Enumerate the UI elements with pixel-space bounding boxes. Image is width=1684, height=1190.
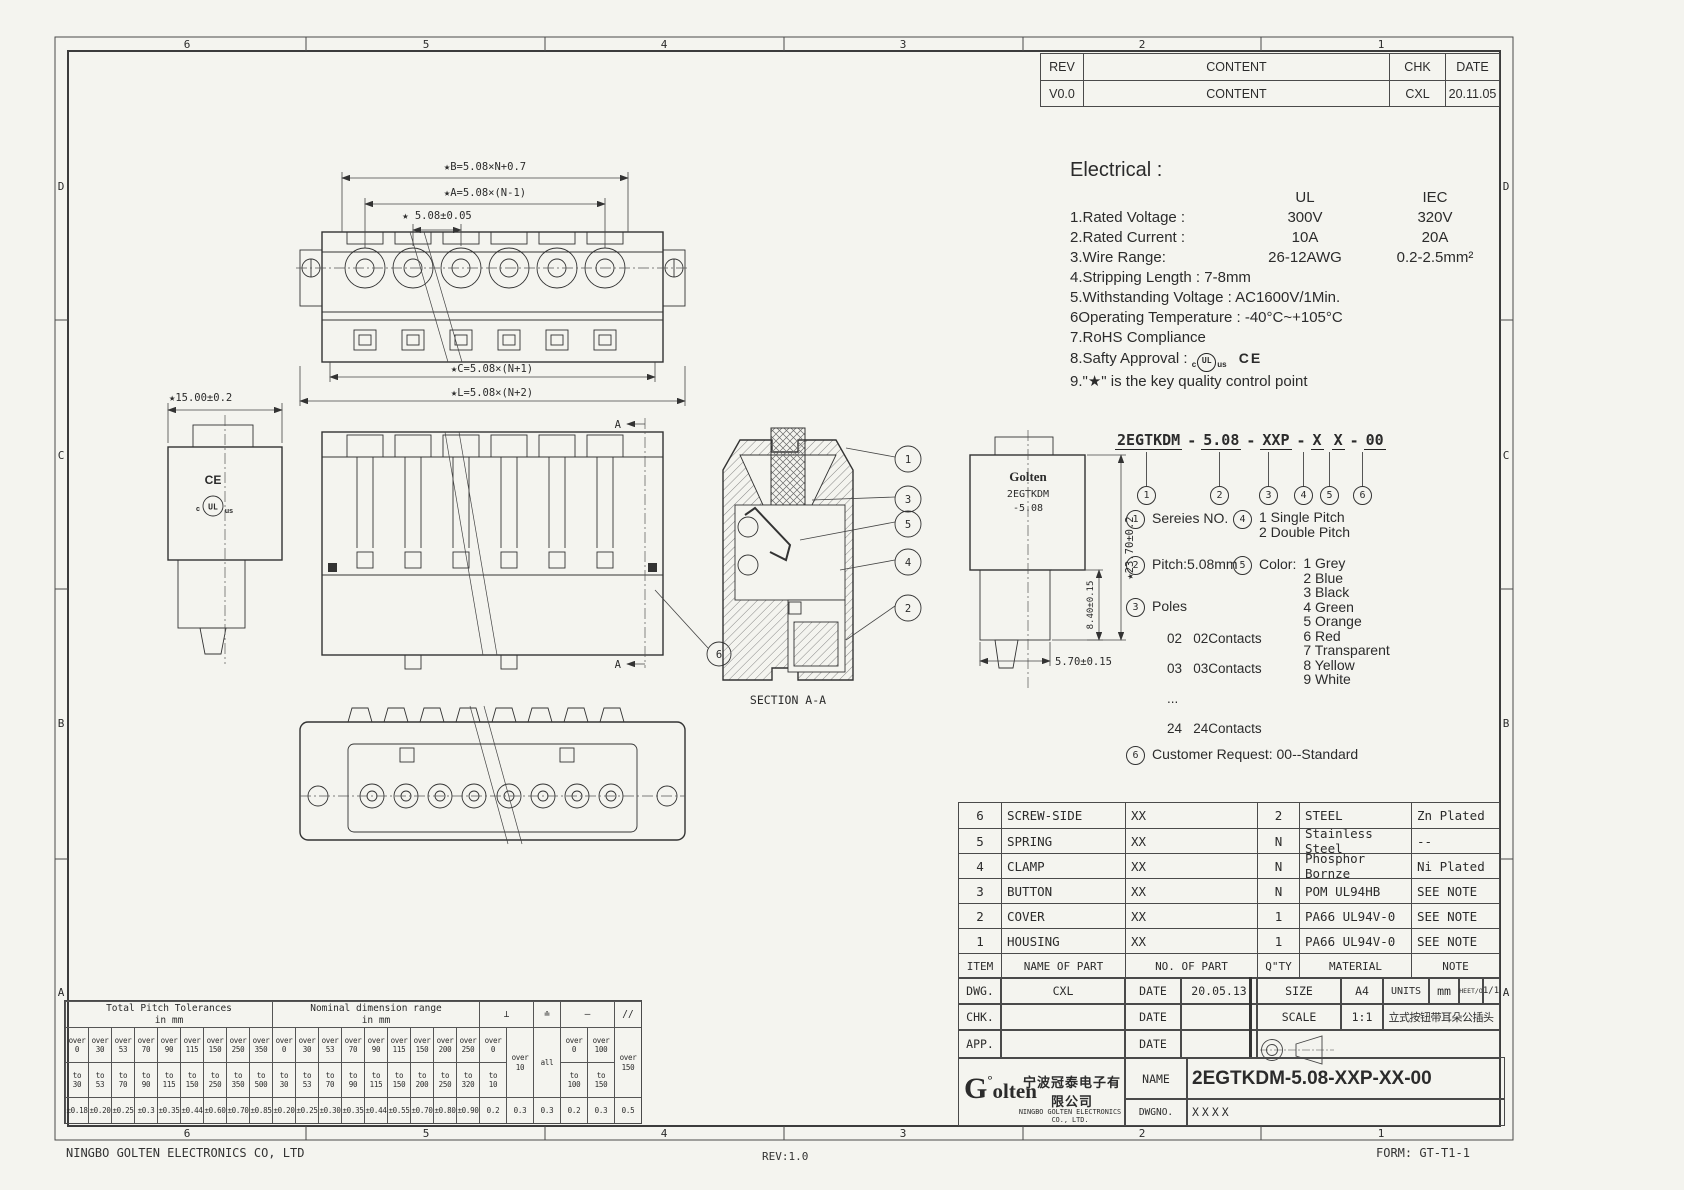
- tol-to: to 320: [456, 1062, 479, 1097]
- bom-qty: 1: [1257, 928, 1299, 953]
- svg-text:★23.70±0.2: ★23.70±0.2: [1124, 516, 1136, 579]
- spec-iec: 20A: [1370, 228, 1500, 248]
- section-view: SECTION A-A 1 3 5 4 2: [723, 428, 921, 707]
- svg-text:A: A: [1503, 986, 1510, 999]
- bom-note: SEE NOTE: [1411, 928, 1499, 953]
- bom-item: 3: [959, 878, 1001, 903]
- size-label: SIZE: [1256, 977, 1342, 1005]
- date-value: [1180, 1029, 1258, 1059]
- tol-to: to 10: [479, 1062, 506, 1097]
- svg-text:UL: UL: [208, 503, 218, 512]
- svg-text:1: 1: [1378, 1127, 1385, 1140]
- tol-value: 0.2: [560, 1097, 587, 1123]
- svg-text:4: 4: [661, 38, 668, 51]
- tol-to: to 200: [410, 1062, 433, 1097]
- svg-text:6: 6: [184, 38, 191, 51]
- dwgno-value: XXXX: [1186, 1098, 1505, 1126]
- dwgno-label: DWGNO.: [1124, 1098, 1188, 1126]
- code-poles: XXP: [1260, 431, 1291, 450]
- name-label: NAME: [1124, 1057, 1188, 1100]
- bom-part-name: HOUSING: [1001, 928, 1125, 953]
- bom-note: SEE NOTE: [1411, 878, 1499, 903]
- tol-to: to 90: [134, 1062, 157, 1097]
- legend-pitch-label: Pitch:5.08mm: [1152, 556, 1238, 572]
- bom-part-no: XX: [1125, 828, 1257, 853]
- app-value: [1000, 1029, 1126, 1059]
- callout-balloon: 2: [1210, 486, 1229, 505]
- bom-header: NAME OF PART: [1001, 953, 1125, 978]
- tol-over: over 53: [318, 1027, 341, 1062]
- legend-color-label: Color:: [1259, 556, 1296, 572]
- scale-value: 1:1: [1340, 1003, 1384, 1031]
- svg-text:3: 3: [900, 38, 907, 51]
- bom-part-name: COVER: [1001, 903, 1125, 928]
- tol-over: over 150: [410, 1027, 433, 1062]
- svg-text:C: C: [1503, 449, 1510, 462]
- date-label: DATE: [1124, 977, 1182, 1005]
- button-hole: [738, 555, 758, 575]
- tol-value: ±0.30: [318, 1097, 341, 1123]
- bom-material: POM UL94HB: [1299, 878, 1411, 903]
- tol-value: 0.3: [533, 1097, 560, 1123]
- dwg-label: DWG.: [958, 977, 1002, 1005]
- bom-item: 5: [959, 828, 1001, 853]
- tol-over: over 90: [364, 1027, 387, 1062]
- svg-text:★C=5.08×(N+1): ★C=5.08×(N+1): [451, 363, 533, 375]
- bom-material: Stainless Steel: [1299, 828, 1411, 853]
- code-pitch: 5.08: [1201, 431, 1241, 450]
- date-value: [1180, 1003, 1258, 1031]
- tol-to: to 70: [318, 1062, 341, 1097]
- tol-value: ±0.90: [456, 1097, 479, 1123]
- svg-text:4: 4: [905, 557, 911, 569]
- tol-over: over 250: [226, 1027, 249, 1062]
- side-view-right: Golten 2EGTKDM -5.08 ★23.70±0.2 8.40±0.1…: [970, 430, 1136, 690]
- legend-series-label: Sereies NO.: [1152, 510, 1228, 526]
- tol-value: ±0.25: [111, 1097, 134, 1123]
- dim-a: ★A=5.08×(N-1): [365, 187, 605, 248]
- svg-text:6: 6: [716, 649, 722, 661]
- callout-6: 6: [655, 590, 731, 666]
- tolerance-table: Total Pitch Tolerances in mm Nominal dim…: [64, 1000, 642, 1124]
- button-hole: [738, 517, 758, 537]
- callout-balloon: 3: [1259, 486, 1278, 505]
- tol-to: to 150: [587, 1062, 614, 1097]
- tol-to: to 100: [560, 1062, 587, 1097]
- bom-qty: 2: [1257, 803, 1299, 828]
- tol-to: to 30: [65, 1062, 88, 1097]
- straightness-icon: —: [560, 1001, 614, 1027]
- company-name-cn: 宁波冠泰电子有限公司: [1022, 1072, 1122, 1110]
- pin-section: [794, 622, 838, 666]
- footer-rev: REV:1.0: [762, 1150, 808, 1163]
- legend-pitch-type: 4 1 Single Pitch 2 Double Pitch: [1233, 510, 1350, 540]
- part-number-code: 2EGTKDM - 5.08 - XXP - X X - 00: [1115, 431, 1386, 450]
- contact-slots: [347, 435, 623, 568]
- code-dash: -: [1350, 432, 1359, 450]
- date-value: 20.05.13: [1180, 977, 1258, 1005]
- bom-part-name: SCREW-SIDE: [1001, 803, 1125, 828]
- legend-poles-label: Poles: [1152, 598, 1187, 614]
- product-name-cn: 立式按钮带耳朵公插头: [1382, 1003, 1500, 1031]
- svg-text:c: c: [196, 506, 200, 513]
- callout-balloon: 5: [1320, 486, 1339, 505]
- tol-value: ±0.85: [249, 1097, 272, 1123]
- svg-text:6: 6: [184, 1127, 191, 1140]
- leader-line: [1268, 452, 1269, 486]
- tol-value: ±0.80: [433, 1097, 456, 1123]
- svg-text:1: 1: [905, 454, 911, 466]
- bom-qty: N: [1257, 853, 1299, 878]
- bom-item: 1: [959, 928, 1001, 953]
- spring-tabs: [348, 708, 624, 722]
- sheet-label: SHEET/OF: [1458, 977, 1484, 1005]
- code-color: X: [1332, 431, 1345, 450]
- dim-pitch: ★ 5.08±0.05: [402, 210, 472, 246]
- chk-label: CHK.: [958, 1003, 1002, 1031]
- spec-ul: 10A: [1250, 228, 1360, 248]
- tol-over: over 0: [479, 1027, 506, 1062]
- tol-value: ±0.18: [65, 1097, 88, 1123]
- tol-over: over 100: [587, 1027, 614, 1062]
- svg-text:★L=5.08×(N+2): ★L=5.08×(N+2): [451, 387, 533, 399]
- bom-material: STEEL: [1299, 803, 1411, 828]
- bom-part-name: BUTTON: [1001, 878, 1125, 903]
- poles-option: 02 02Contacts: [1167, 631, 1262, 646]
- bom-qty: 1: [1257, 903, 1299, 928]
- svg-text:2: 2: [1139, 1127, 1146, 1140]
- bom-note: Ni Plated: [1411, 853, 1499, 878]
- bom-header: NOTE: [1411, 953, 1499, 978]
- tol-to: to 30: [272, 1062, 295, 1097]
- tol-value: ±0.20: [272, 1097, 295, 1123]
- tol-to: to 150: [180, 1062, 203, 1097]
- leader-line: [1329, 452, 1330, 486]
- spec-iec: 320V: [1370, 208, 1500, 228]
- units-value: mm: [1428, 977, 1460, 1005]
- bottom-view: [300, 706, 685, 844]
- svg-text:2: 2: [1139, 38, 1146, 51]
- iec-col-header: IEC: [1370, 188, 1500, 208]
- code-dash: -: [1246, 432, 1255, 450]
- rev-cell: 20.11.05: [1445, 80, 1499, 106]
- tol-value: ±0.25: [295, 1097, 318, 1123]
- svg-text:8.40±0.15: 8.40±0.15: [1086, 581, 1096, 630]
- tol-to: to 150: [387, 1062, 410, 1097]
- divider-line: [1249, 977, 1252, 1057]
- tol-value: ±0.70: [410, 1097, 433, 1123]
- wire-entry-holes: [345, 232, 625, 288]
- tol-to: to 53: [88, 1062, 111, 1097]
- tol-value: 0.5: [614, 1097, 641, 1123]
- color-option: 9 White: [1303, 671, 1350, 687]
- company-name-en: NINGBO GOLTEN ELECTRONICS CO., LTD.: [1016, 1108, 1124, 1124]
- balloon-4: 4: [1233, 510, 1252, 529]
- units-label: UNITS: [1382, 977, 1430, 1005]
- dim-plug-depth: 5.70±0.15: [980, 642, 1112, 668]
- poles-option: 24 24Contacts: [1167, 721, 1262, 736]
- bom-note: --: [1411, 828, 1499, 853]
- code-pitch-type: X: [1311, 431, 1324, 450]
- tol-over: over 350: [249, 1027, 272, 1062]
- svg-text:1: 1: [1378, 38, 1385, 51]
- bom-item: 6: [959, 803, 1001, 828]
- drawing-sheet: 65 43 21 65 43 21 DC BA DC BA REV CONTEN…: [0, 0, 1684, 1190]
- bom-part-no: XX: [1125, 853, 1257, 878]
- dim-plug-height: 8.40±0.15: [1052, 570, 1103, 640]
- poles-option: 03 03Contacts: [1167, 661, 1262, 676]
- tol-group2-title: Nominal dimension range in mm: [272, 1001, 479, 1027]
- tol-value: ±0.70: [226, 1097, 249, 1123]
- tol-range: over 150: [614, 1027, 641, 1097]
- brand-logo-text: Golten: [1009, 469, 1047, 484]
- code-dash: -: [1187, 432, 1196, 450]
- symmetry-icon: ≐: [533, 1001, 560, 1027]
- front-view: ★ 5.08±0.05 ★A=5.08×(N-1) ★B=5.08×N+0.7 …: [296, 161, 690, 406]
- bom-qty: N: [1257, 878, 1299, 903]
- dwg-value: CXL: [1000, 977, 1126, 1005]
- bom-material: Phosphor Bornze: [1299, 853, 1411, 878]
- tol-to: to 500: [249, 1062, 272, 1097]
- legend-customer-label: Customer Request: 00--Standard: [1152, 746, 1358, 762]
- svg-text:A: A: [615, 419, 622, 431]
- tol-over: over 30: [295, 1027, 318, 1062]
- tol-value: ±0.55: [387, 1097, 410, 1123]
- bom-header: NO. OF PART: [1125, 953, 1257, 978]
- side-view-left: ★15.00±0.2 CE UL c us: [168, 392, 282, 664]
- bom-table: 6 SCREW-SIDE XX 2 STEEL Zn Plated 5 SPRI…: [958, 802, 1500, 979]
- footer-company: NINGBO GOLTEN ELECTRONICS CO, LTD: [66, 1146, 304, 1160]
- leader-line: [1303, 452, 1304, 486]
- rev-header: DATE: [1445, 54, 1499, 80]
- tol-to: to 115: [364, 1062, 387, 1097]
- tol-value: ±0.20: [88, 1097, 111, 1123]
- bom-part-no: XX: [1125, 928, 1257, 953]
- tol-over: over 200: [433, 1027, 456, 1062]
- svg-text:5: 5: [905, 519, 911, 531]
- drawing-views: .ol{fill:none;stroke:#333;stroke-width:1…: [55, 140, 1155, 870]
- callout-balloon: 4: [1294, 486, 1313, 505]
- bom-item: 2: [959, 903, 1001, 928]
- spec-iec: 0.2-2.5mm²: [1370, 248, 1500, 268]
- bom-note: SEE NOTE: [1411, 903, 1499, 928]
- bom-part-name: CLAMP: [1001, 853, 1125, 878]
- code-dash: -: [1297, 432, 1306, 450]
- bom-header: ITEM: [959, 953, 1001, 978]
- legend-customer: 6 Customer Request: 00--Standard: [1126, 746, 1358, 765]
- tol-over: over 0: [65, 1027, 88, 1062]
- tol-over: over 0: [560, 1027, 587, 1062]
- tol-value: ±0.3: [134, 1097, 157, 1123]
- date-label: DATE: [1124, 1003, 1182, 1031]
- code-customer: 00: [1364, 431, 1386, 450]
- tol-to: to 250: [203, 1062, 226, 1097]
- revision-table: REV CONTENT CHK DATE V0.0 CONTENT CXL 20…: [1040, 53, 1500, 107]
- tol-to: to 250: [433, 1062, 456, 1097]
- legend-double-pitch: 2 Double Pitch: [1259, 524, 1350, 540]
- chk-value: [1000, 1003, 1126, 1031]
- wire-section: [771, 428, 805, 510]
- tol-to: to 70: [111, 1062, 134, 1097]
- svg-text:★15.00±0.2: ★15.00±0.2: [169, 392, 232, 404]
- svg-text:★ 5.08±0.05: ★ 5.08±0.05: [402, 210, 472, 222]
- bom-material: PA66 UL94V-0: [1299, 903, 1411, 928]
- rev-header: REV: [1041, 54, 1083, 80]
- tol-value: 0.2: [479, 1097, 506, 1123]
- rev-cell: CXL: [1389, 80, 1445, 106]
- ce-mark-icon: CE: [1239, 350, 1262, 366]
- tol-to: to 350: [226, 1062, 249, 1097]
- bom-item: 4: [959, 853, 1001, 878]
- ce-mark-icon: CE: [205, 473, 222, 487]
- spec-ul: 300V: [1250, 208, 1360, 228]
- callout-balloon: 6: [1353, 486, 1372, 505]
- rev-header: CHK: [1389, 54, 1445, 80]
- tol-over: over 70: [134, 1027, 157, 1062]
- tol-range: all: [533, 1027, 560, 1097]
- tol-to: to 90: [341, 1062, 364, 1097]
- tol-over: over 90: [157, 1027, 180, 1062]
- tol-over: over 0: [272, 1027, 295, 1062]
- perpendicularity-icon: ⊥: [479, 1001, 533, 1027]
- svg-text:3: 3: [900, 1127, 907, 1140]
- ul-mark-us: us: [1217, 360, 1226, 369]
- svg-text:5: 5: [423, 1127, 430, 1140]
- spec-ul: 26-12AWG: [1250, 248, 1360, 268]
- bom-qty: N: [1257, 828, 1299, 853]
- bom-material: PA66 UL94V-0: [1299, 928, 1411, 953]
- bom-part-no: XX: [1125, 803, 1257, 828]
- rev-header: CONTENT: [1083, 54, 1389, 80]
- bom-part-no: XX: [1125, 878, 1257, 903]
- logo-g: G: [964, 1072, 987, 1105]
- size-value: A4: [1340, 977, 1384, 1005]
- ul-mark-c: c: [1192, 360, 1196, 369]
- svg-text:us: us: [225, 508, 233, 515]
- tol-to: to 53: [295, 1062, 318, 1097]
- tol-over: over 30: [88, 1027, 111, 1062]
- tol-range: over 10: [506, 1027, 533, 1097]
- front-view-middle: A A 6: [322, 418, 731, 671]
- bom-part-name: SPRING: [1001, 828, 1125, 853]
- ul-col-header: UL: [1250, 188, 1360, 208]
- ul-mark-icon: UL c us: [196, 496, 233, 516]
- scale-label: SCALE: [1256, 1003, 1342, 1031]
- bom-note: Zn Plated: [1411, 803, 1499, 828]
- poles-option: ...: [1167, 691, 1178, 706]
- svg-text:2: 2: [905, 603, 911, 615]
- part-name-value: 2EGTKDM-5.08-XXP-XX-00: [1186, 1057, 1505, 1100]
- svg-text:3: 3: [905, 494, 911, 506]
- tol-over: over 115: [387, 1027, 410, 1062]
- tol-over: over 250: [456, 1027, 479, 1062]
- leader-line: [1219, 452, 1220, 486]
- svg-text:B: B: [1503, 717, 1510, 730]
- button-row: [354, 330, 616, 350]
- tol-group1-title: Total Pitch Tolerances in mm: [65, 1001, 272, 1027]
- tol-over: over 115: [180, 1027, 203, 1062]
- tol-value: 0.3: [587, 1097, 614, 1123]
- tol-over: over 150: [203, 1027, 226, 1062]
- bom-part-no: XX: [1125, 903, 1257, 928]
- tol-value: ±0.35: [157, 1097, 180, 1123]
- svg-text:★B=5.08×N+0.7: ★B=5.08×N+0.7: [444, 161, 526, 173]
- section-label: SECTION A-A: [750, 693, 826, 707]
- rev-cell: CONTENT: [1083, 80, 1389, 106]
- poles-options: 02 02Contacts 03 03Contacts ... 24 24Con…: [1152, 616, 1262, 751]
- tol-to: to 115: [157, 1062, 180, 1097]
- tol-value: 0.3: [506, 1097, 533, 1123]
- bom-header: Q"TY: [1257, 953, 1299, 978]
- parallelism-icon: //: [614, 1001, 641, 1027]
- tol-value: ±0.44: [364, 1097, 387, 1123]
- svg-text:5: 5: [423, 38, 430, 51]
- tol-value: ±0.35: [341, 1097, 364, 1123]
- ul-cert-icon: UL: [1197, 353, 1216, 372]
- leader-line: [1362, 452, 1363, 486]
- app-label: APP.: [958, 1029, 1002, 1059]
- tol-over: over 70: [341, 1027, 364, 1062]
- svg-text:A: A: [58, 986, 65, 999]
- date-label: DATE: [1124, 1029, 1182, 1059]
- footer-form: FORM: GT-T1-1: [1376, 1146, 1470, 1160]
- svg-text:★A=5.08×(N-1): ★A=5.08×(N-1): [444, 187, 526, 199]
- tol-over: over 53: [111, 1027, 134, 1062]
- tol-value: ±0.60: [203, 1097, 226, 1123]
- svg-text:A: A: [615, 659, 622, 671]
- dim-c: ★C=5.08×(N+1): [330, 362, 655, 382]
- legend-single-pitch: 1 Single Pitch: [1259, 509, 1345, 525]
- balloon-5: 5: [1233, 556, 1252, 575]
- svg-text:4: 4: [661, 1127, 668, 1140]
- tol-value: ±0.44: [180, 1097, 203, 1123]
- bom-header: MATERIAL: [1299, 953, 1411, 978]
- rev-cell: V0.0: [1041, 80, 1083, 106]
- sheet-value: 1/1: [1482, 977, 1500, 1005]
- svg-text:5.70±0.15: 5.70±0.15: [1055, 656, 1112, 668]
